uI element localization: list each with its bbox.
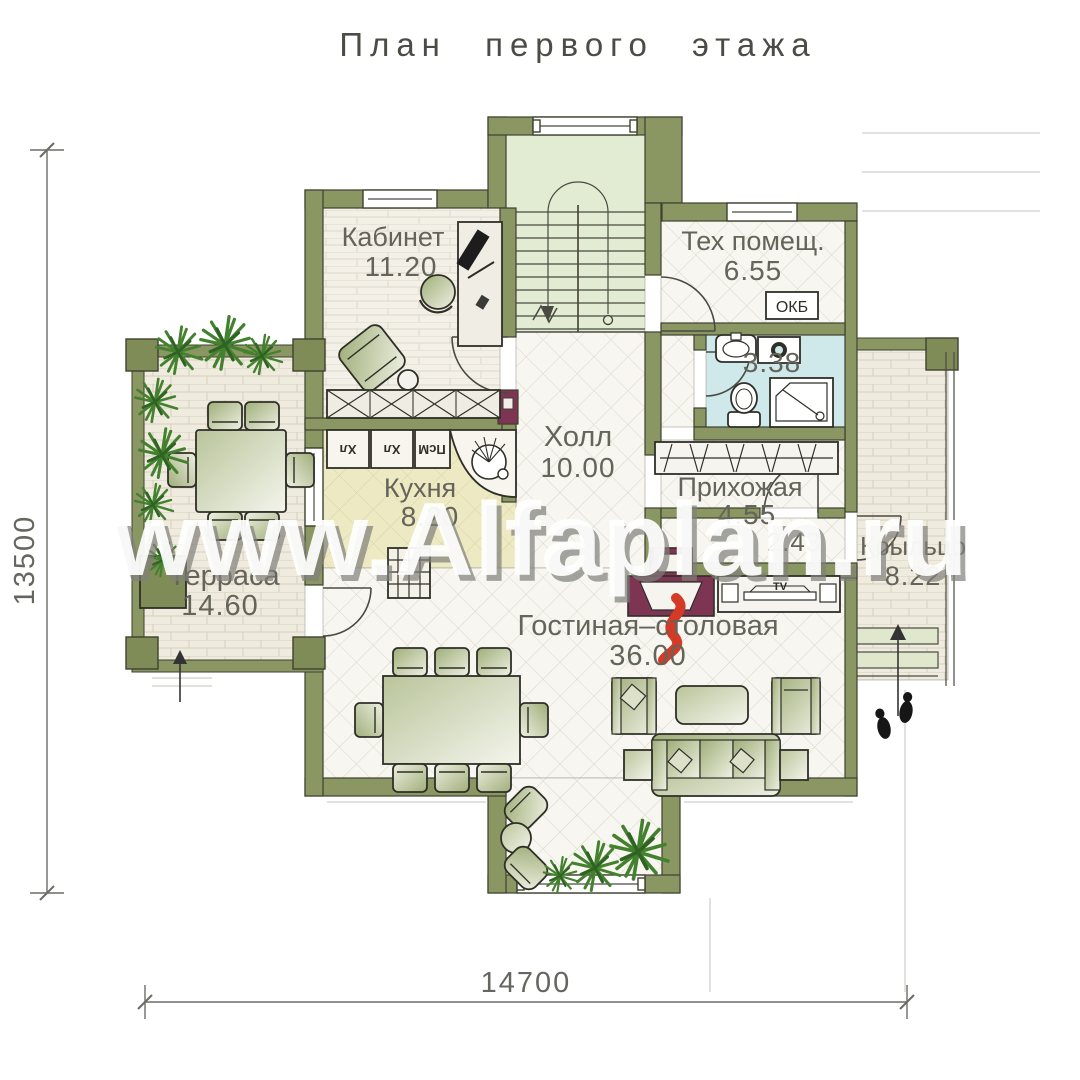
room-bathroom-area: 3.38 [743,347,802,378]
sofa [652,734,780,796]
coffee-table [676,686,748,724]
side-table-left [624,750,652,780]
okb-label: ОКБ [776,299,808,316]
floor-nook [661,335,694,427]
fridge-2-label: Хл [384,442,401,457]
side-table-right [780,750,808,780]
window-stair-bay [533,117,637,135]
room-office-label: Кабинет [342,222,445,252]
room-hall-label: Холл [544,421,612,453]
dimension-height: 13500 [9,515,41,606]
armchair-right [772,678,820,734]
page-title: План первого этажа [339,26,816,63]
room-living-label: Гостиная–столовая [517,610,778,642]
watermark-text: www.Alfaplan.ru [111,482,968,598]
wardrobe [327,390,500,418]
side-table [398,370,418,390]
toilet [728,383,760,427]
room-hall-area: 10.00 [540,452,615,483]
room-living-area: 36.00 [609,640,687,672]
room-tech-area: 6.55 [724,255,783,286]
floor-stairs [506,133,645,332]
okb-box: ОКБ [766,292,818,319]
fridge-1-label: Хл [340,442,357,457]
window-office [363,190,437,208]
dishwasher-label: ПсМ [418,442,445,457]
watermark: www.Alfaplan.ru www.Alfaplan.ru [111,482,973,604]
floor-plan-drawing: Хл Хл ПсМ ОКБ [0,0,1080,1080]
window-tech-room [727,203,797,221]
shower [770,378,833,427]
floor-plan-page: Хл Хл ПсМ ОКБ [0,0,1080,1080]
coat-rack [655,442,838,474]
armchair-left [612,678,656,734]
room-tech-label: Тех помещ. [681,226,824,256]
room-office-area: 11.20 [365,251,438,282]
dimension-width: 14700 [481,967,572,999]
